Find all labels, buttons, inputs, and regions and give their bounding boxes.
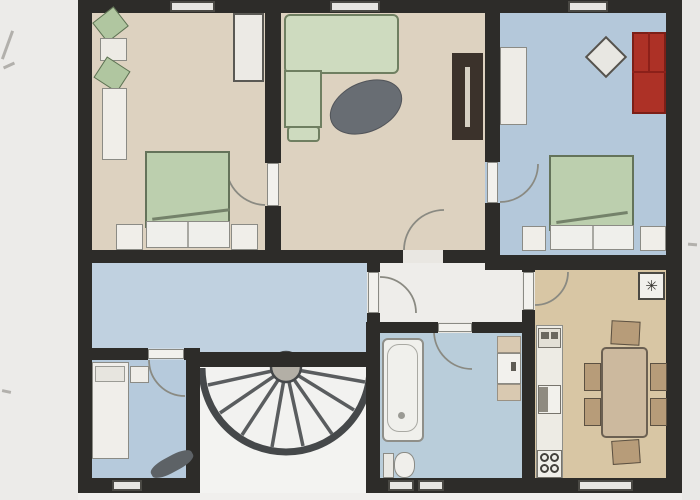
dresser	[102, 88, 127, 160]
side-table	[100, 38, 127, 61]
dining-chair-right-2	[650, 398, 667, 426]
dining-chair-right-1	[650, 363, 667, 391]
bathtub-drain	[398, 412, 405, 419]
bath-counter-lower	[497, 384, 521, 401]
double-bed-1-pillow-divider	[187, 222, 189, 247]
dining-chair-bottom	[611, 439, 641, 465]
door-arc-corridor	[380, 277, 416, 313]
door-arc-bathroom	[434, 331, 472, 369]
stove-burner-1	[540, 453, 549, 462]
kitchen-appliance-knob-2	[551, 332, 558, 339]
stove-burner-3	[540, 464, 549, 473]
window-living	[330, 1, 380, 12]
nightstand-2-right	[640, 226, 666, 251]
nightstand-1-right	[231, 224, 258, 250]
wall-stairwell-west	[186, 348, 200, 493]
nightstand-1-left	[116, 224, 143, 250]
wall-bedroom-living	[265, 8, 281, 257]
window-bedroom-right	[568, 1, 608, 12]
door-leaf-bedroom-right	[487, 162, 498, 203]
dining-chair-top	[610, 320, 640, 345]
door-arc-bedroom-right	[500, 164, 538, 202]
window-bottom-room	[112, 480, 142, 491]
stove-burner-4	[550, 464, 559, 473]
door-arc-living	[404, 210, 444, 250]
bath-sink	[497, 353, 521, 384]
wall-right	[666, 0, 682, 493]
kitchen-appliance-knob-1	[541, 332, 549, 339]
wall-left	[78, 0, 92, 493]
tv-board-slit	[465, 67, 470, 127]
double-bed-2-pillow-divider	[592, 226, 594, 249]
sofa-l-top	[284, 14, 399, 74]
kitchen-sink-basin	[539, 387, 548, 412]
door-leaf-hall-corridor	[368, 272, 379, 313]
window-bathroom-1	[388, 480, 414, 491]
door-arc-bedroom-left	[226, 165, 266, 205]
door-leaf-bedroom-left	[267, 163, 279, 206]
paper-margin-left	[0, 0, 78, 500]
desk	[500, 47, 527, 125]
bath-sink-faucet	[511, 362, 516, 371]
sofa-l-side	[284, 70, 322, 128]
toilet-bowl	[394, 452, 415, 478]
dining-table	[601, 347, 648, 438]
dining-chair-left-2	[584, 398, 601, 426]
window-bedroom-left	[170, 1, 215, 12]
toilet-tank	[383, 453, 394, 478]
wall-stairwell-north	[186, 352, 380, 367]
nightstand-2-left	[522, 226, 546, 251]
door-arc-kitchen	[535, 272, 568, 305]
nightstand-3	[130, 366, 149, 383]
door-leaf-bathroom	[438, 323, 472, 332]
window-bathroom-2	[418, 480, 444, 491]
sofa-l-foot	[287, 126, 320, 142]
floor-plan-scan: ✳	[0, 0, 700, 500]
fan-icon-box: ✳	[638, 272, 665, 300]
wall-stairwell-east	[366, 322, 380, 493]
door-leaf-bottom-room	[148, 349, 184, 359]
bath-counter-upper	[497, 336, 521, 353]
wall-living-bedroom-right	[485, 8, 500, 255]
single-bed-pillow	[95, 366, 125, 382]
paper-margin-bottom	[78, 493, 682, 500]
door-arc-bottom-room	[149, 360, 185, 396]
window-kitchen	[578, 480, 633, 491]
wall-bedroom-right-south	[485, 255, 682, 270]
red-sofa-seam-v	[648, 32, 650, 72]
wardrobe	[233, 13, 264, 82]
stove-burner-2	[550, 453, 559, 462]
paper-margin-right	[682, 0, 700, 500]
door-leaf-kitchen	[523, 272, 534, 310]
doorway-living	[403, 250, 443, 263]
dining-chair-left-1	[584, 363, 601, 391]
